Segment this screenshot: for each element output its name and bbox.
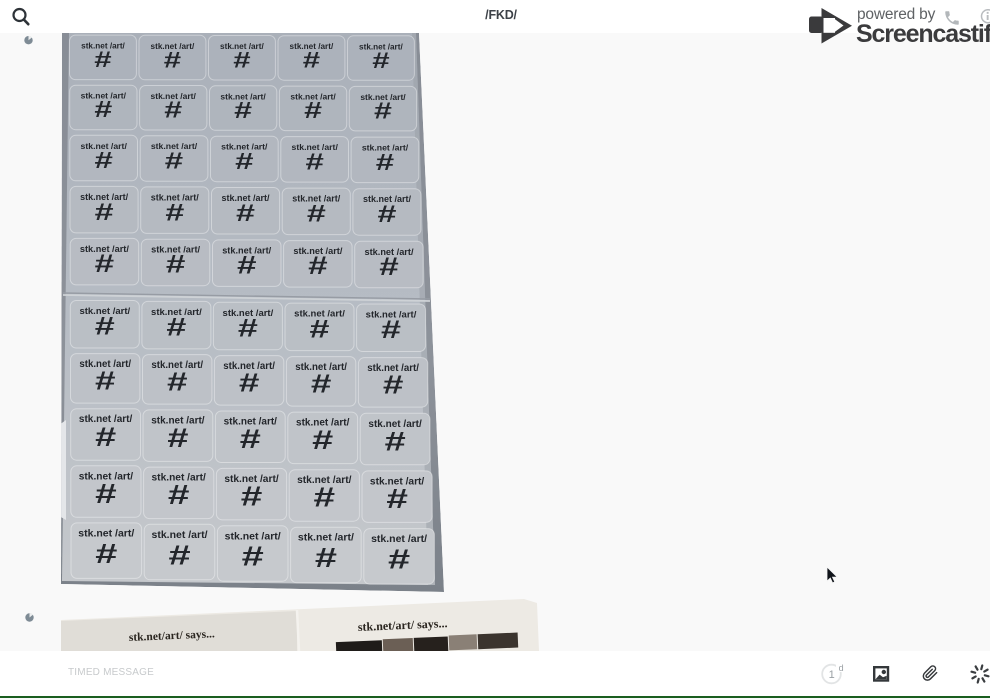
svg-text:#: # [168,540,190,571]
svg-text:#: # [95,538,117,569]
svg-text:#: # [372,48,389,72]
svg-text:#: # [94,97,113,122]
svg-text:#: # [305,149,324,175]
svg-text:#: # [164,97,183,122]
svg-text:#: # [164,48,181,72]
svg-text:#: # [240,424,261,454]
svg-text:#: # [385,426,406,456]
svg-text:#: # [312,425,333,455]
svg-text:#: # [386,484,408,514]
svg-text:#: # [238,314,258,342]
svg-text:#: # [94,48,111,72]
svg-text:#: # [235,149,254,175]
svg-text:#: # [381,315,401,343]
svg-text:#: # [311,369,332,398]
svg-text:#: # [239,368,260,397]
svg-text:#: # [167,422,188,452]
svg-text:#: # [95,479,117,509]
svg-text:#: # [165,148,184,174]
svg-text:#: # [233,48,250,72]
svg-text:#: # [374,98,393,123]
svg-text:#: # [315,543,337,574]
svg-text:#: # [303,48,320,72]
svg-text:1: 1 [829,669,835,681]
svg-text:#: # [388,544,410,575]
svg-text:#: # [304,98,323,123]
svg-text:#: # [241,482,263,512]
svg-text:#: # [168,481,190,511]
svg-text:#: # [376,149,395,175]
svg-text:#: # [95,312,115,340]
svg-text:#: # [237,252,257,279]
svg-text:#: # [236,200,255,227]
svg-text:#: # [307,200,326,227]
svg-text:d: d [839,663,844,673]
svg-text:#: # [95,366,116,395]
svg-text:#: # [95,421,116,451]
svg-text:#: # [94,148,113,174]
svg-text:#: # [95,199,114,226]
svg-text:#: # [242,541,264,572]
svg-text:#: # [308,253,328,280]
svg-text:#: # [378,201,397,228]
svg-text:#: # [383,370,404,399]
svg-text:#: # [234,98,253,123]
svg-text:#: # [314,483,336,513]
svg-text:#: # [167,367,188,396]
svg-text:#: # [379,254,399,281]
svg-text:#: # [166,251,186,278]
svg-text:#: # [165,199,184,226]
svg-text:#: # [310,315,330,343]
svg-text:#: # [166,313,186,341]
svg-text:#: # [95,251,115,278]
